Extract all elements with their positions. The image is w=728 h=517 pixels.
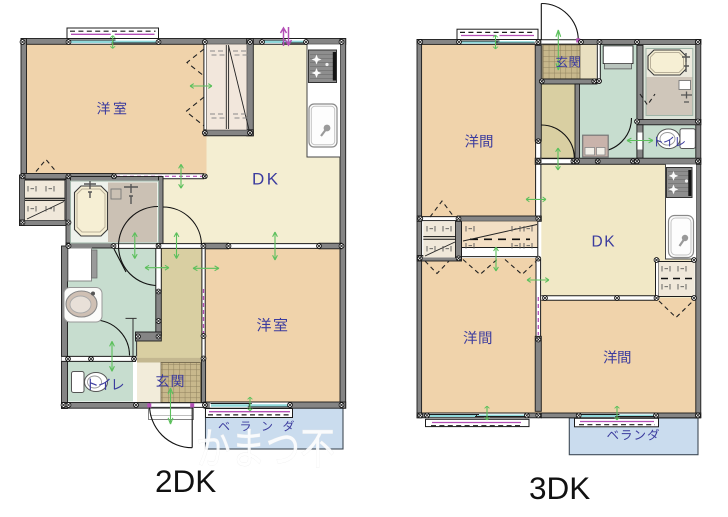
svg-text:DK: DK (252, 170, 281, 189)
svg-text:DK: DK (592, 234, 617, 251)
svg-text:3DK: 3DK (529, 470, 590, 506)
svg-text:2DK: 2DK (155, 463, 216, 499)
